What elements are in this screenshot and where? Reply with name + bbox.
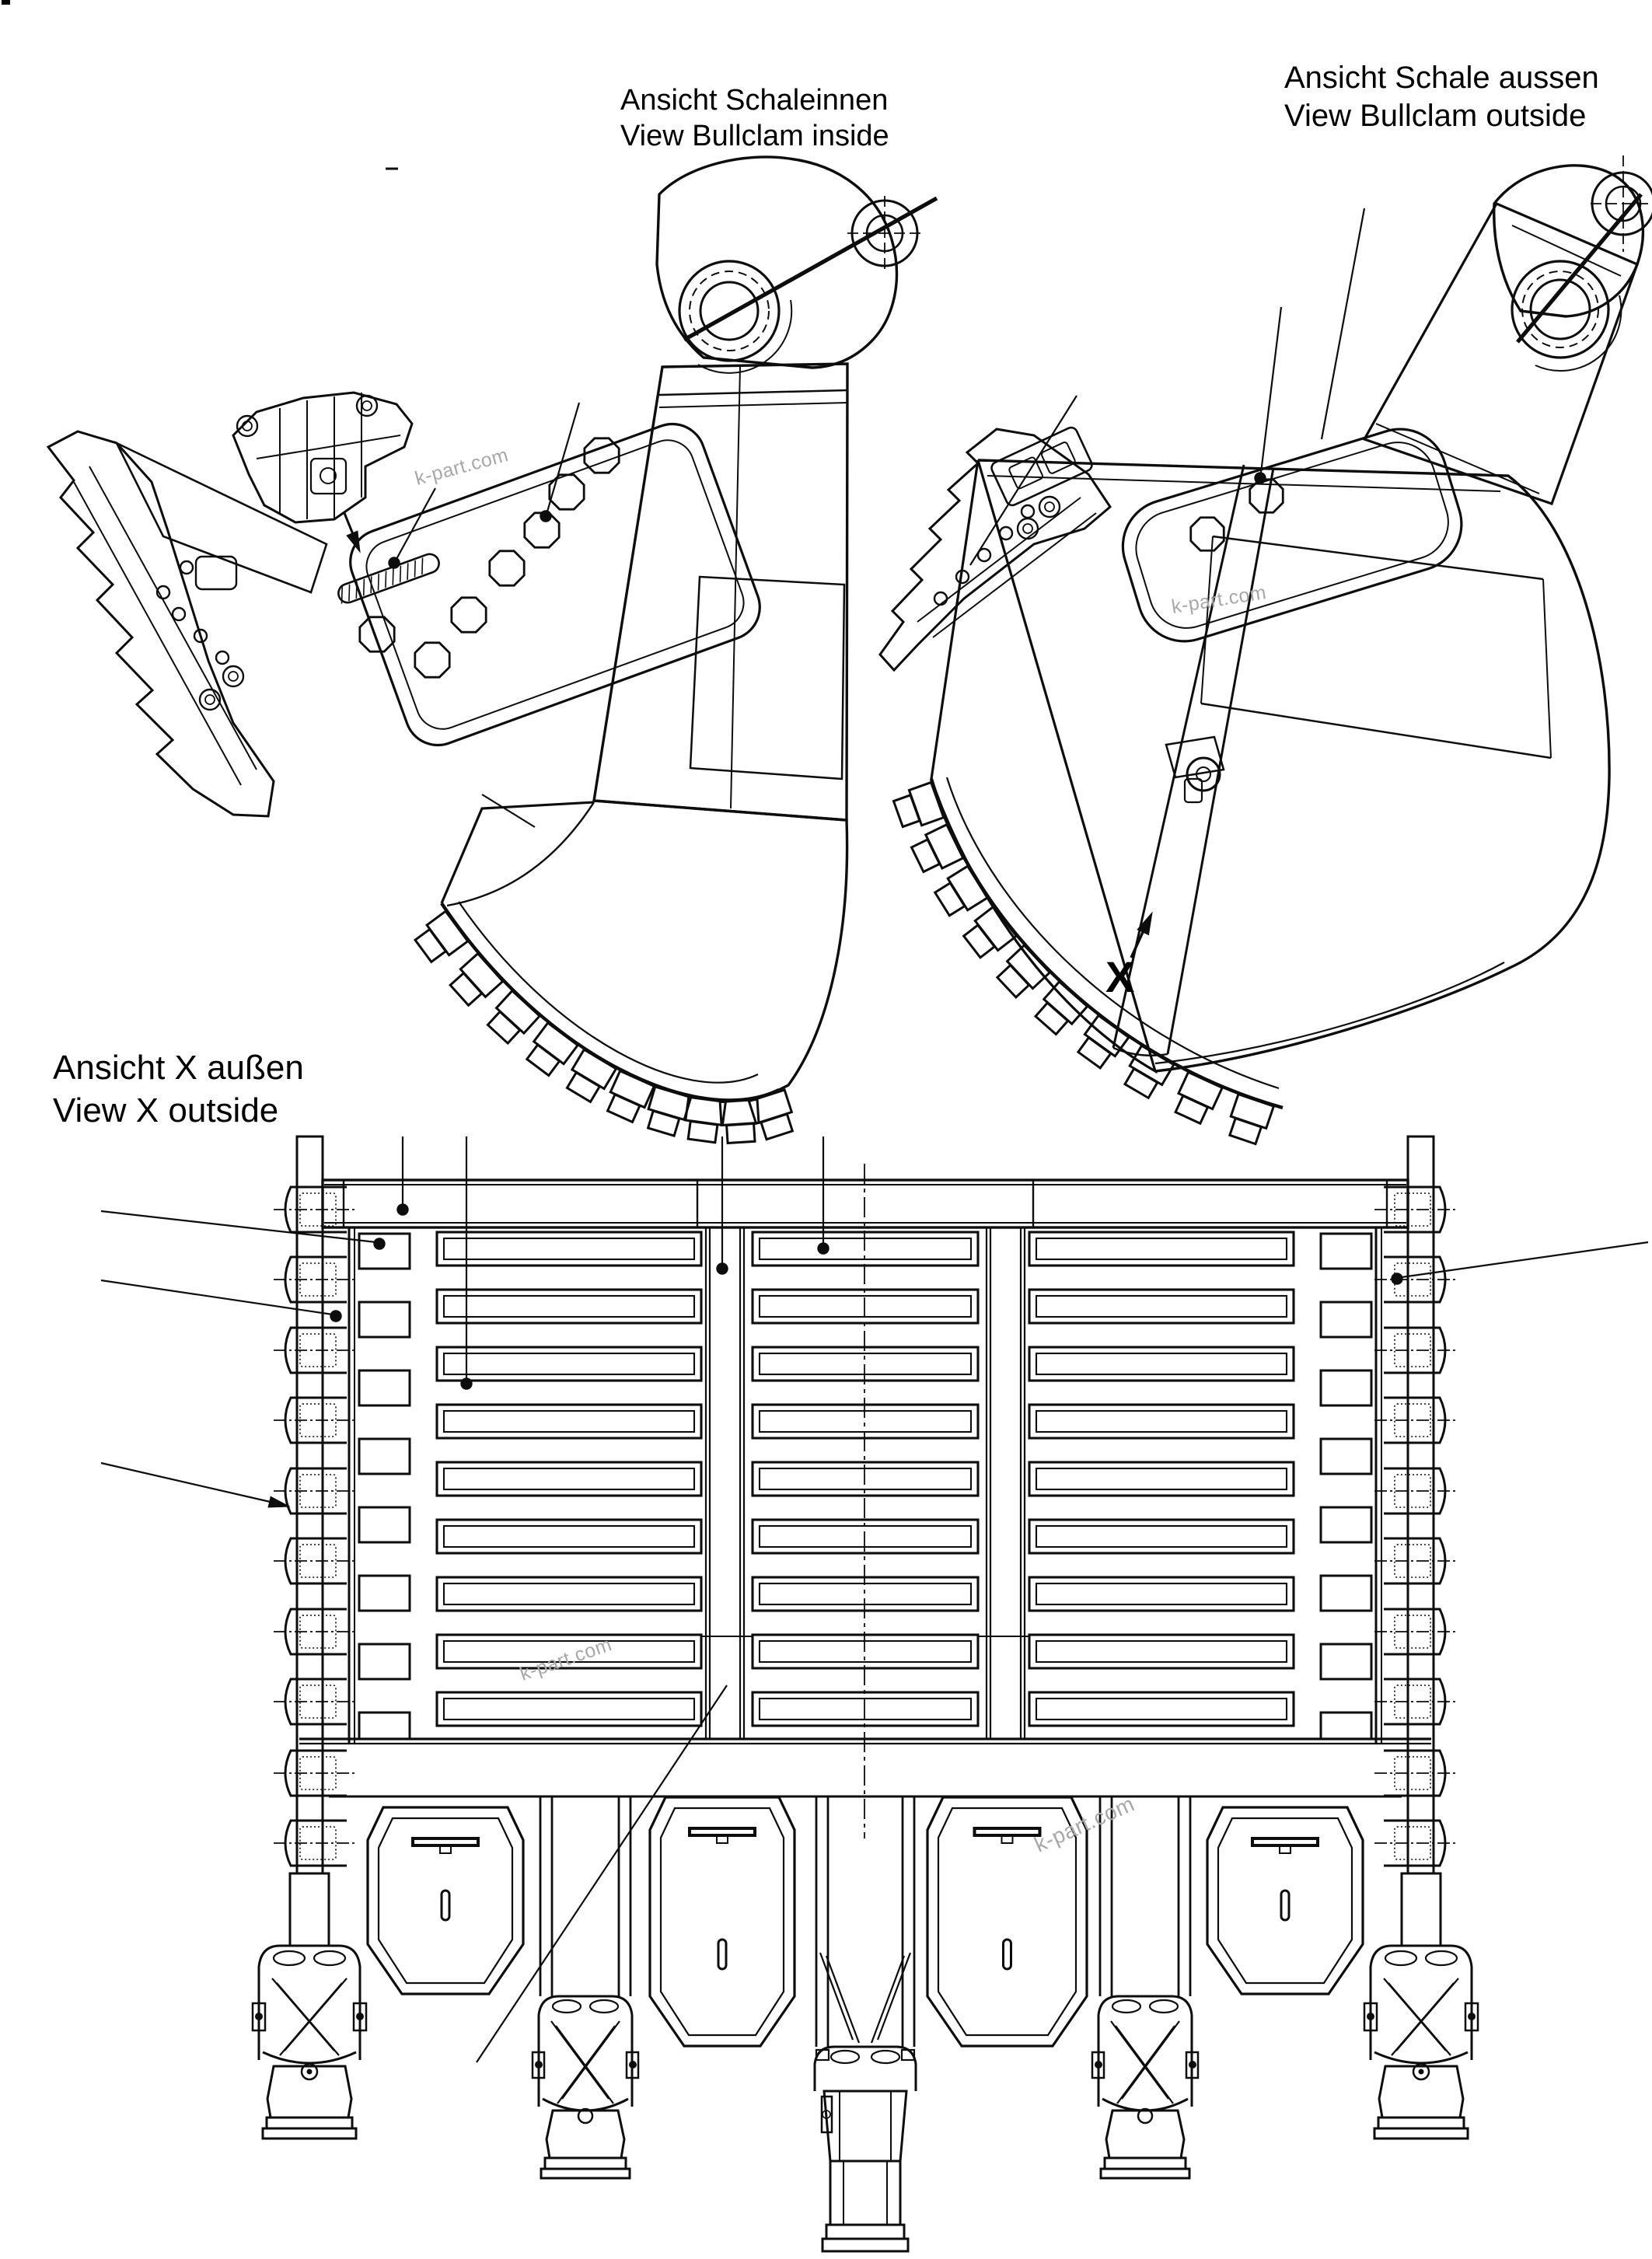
ear-pin [256, 2013, 263, 2020]
tooth-pin-dot [307, 2069, 312, 2074]
bucket-tooth-cap [761, 1114, 792, 1140]
shroud-retainer-bar [690, 1828, 755, 1835]
slot-group [336, 551, 442, 605]
tooth-base-plate [263, 2128, 356, 2139]
leader-dot [389, 557, 400, 568]
shroud-slot [718, 1940, 726, 1969]
wear-bar-inner [1036, 1468, 1287, 1489]
serrated-edge-assembly [880, 429, 1110, 670]
bucket-tooth-cap [527, 1045, 560, 1075]
shroud-slot [1281, 1891, 1289, 1920]
wear-bar-outer [753, 1462, 978, 1496]
detail-ellipse [1112, 2000, 1140, 2013]
lug-ring [237, 416, 257, 436]
wear-bar-inner [760, 1583, 971, 1604]
lug-ring-inner [362, 401, 372, 410]
detail-ellipse [1150, 2000, 1178, 2013]
mount-plate-outer [1111, 417, 1472, 653]
shell-facet [1201, 704, 1551, 758]
serrated-edge-assembly [48, 431, 274, 816]
bolt-ring [1018, 518, 1038, 539]
shell-facet [1543, 579, 1551, 758]
side-square-left [359, 1234, 410, 1269]
wear-bar-inner [760, 1526, 971, 1547]
side-square-right [1321, 1576, 1371, 1611]
adapter-strap [562, 2021, 620, 2099]
bucket-tooth-cap [688, 1121, 718, 1142]
bolt-head [934, 592, 947, 605]
wear-bar-inner [444, 1468, 694, 1489]
wear-bar-outer [753, 1635, 978, 1668]
detail-ellipse [274, 1951, 305, 1965]
leader-dot [461, 1378, 472, 1389]
tooth-shaft [290, 1873, 329, 1946]
caption-view-x: Ansicht X außen View X outside [53, 1046, 304, 1132]
tooth-base-plate [823, 2239, 908, 2251]
bucket-tooth [1008, 945, 1050, 989]
shroud-retainer-bar [413, 1838, 478, 1845]
wear-bar-inner [1036, 1641, 1287, 1662]
shell-outline [978, 460, 1609, 1071]
lip-shroud-inner [661, 1808, 784, 2035]
leader-dot [818, 1243, 829, 1254]
bolt-ring-inner [1045, 502, 1054, 512]
wear-bar-inner [760, 1468, 971, 1489]
side-square-left [359, 1370, 410, 1405]
adapter-strap [277, 1983, 339, 2055]
leader-dot [717, 1263, 728, 1274]
wear-bar-outer [753, 1577, 978, 1611]
slot-hatch [365, 576, 376, 593]
leader-line [482, 794, 535, 827]
slot-hatch [344, 585, 354, 602]
ear-pin [1469, 2013, 1476, 2020]
bucket-tooth-cap [727, 1123, 755, 1143]
adapter-rib [257, 435, 400, 459]
wear-block-right [1384, 1609, 1445, 1654]
tower-fold [659, 390, 847, 395]
tower-outline [594, 364, 847, 820]
slot-hatch [373, 574, 384, 591]
wear-bar-outer [1029, 1347, 1294, 1381]
caption-view-inside-en: View Bullclam inside [620, 118, 889, 154]
wear-bar-outer [437, 1405, 701, 1438]
side-square-right [1321, 1234, 1371, 1269]
arm-band-inner [1376, 424, 1539, 494]
detail-ellipse [1426, 1951, 1457, 1965]
wear-bar-outer [753, 1290, 978, 1323]
bucket-tooth-cap [450, 973, 482, 1005]
wear-bar-inner [1036, 1353, 1287, 1374]
wear-bar-outer [1029, 1520, 1294, 1553]
side-square-right [1321, 1370, 1371, 1405]
side-square-right [1321, 1507, 1371, 1542]
octagon-hole [452, 598, 486, 632]
view-x-marker-label: X [1105, 951, 1134, 1002]
leader-dot [397, 1204, 408, 1215]
bucket-tooth-cap [997, 965, 1029, 997]
tooth-body [824, 2091, 906, 2161]
side-square-right [1321, 1644, 1371, 1679]
adapter-strap [1116, 2026, 1173, 2104]
adapter-strap [871, 1956, 904, 2043]
bolt-ring-inner [205, 695, 215, 704]
leader-line [101, 1463, 274, 1503]
bucket-tooth-cap [1230, 1119, 1262, 1144]
wear-bar-outer [437, 1692, 701, 1726]
side-square-left [359, 1302, 410, 1337]
shroud-slot [442, 1891, 449, 1920]
shroud-retainer-bar [1252, 1838, 1318, 1845]
detail-ellipse [831, 2051, 859, 2063]
bolt-head [216, 651, 229, 664]
bolt-ring-inner [1023, 524, 1032, 533]
wear-block-right [1384, 1821, 1445, 1866]
wear-block-right [1384, 1187, 1445, 1232]
lip-shroud-outer [368, 1807, 523, 1994]
wear-slot [336, 551, 442, 605]
cutting-edge-arc [442, 903, 779, 1100]
tooth-body [1106, 2111, 1184, 2158]
wear-bar-outer [1029, 1635, 1294, 1668]
detail-ellipse [871, 2051, 899, 2063]
bolt-ring [1039, 497, 1060, 517]
wear-bar-inner [444, 1296, 694, 1317]
adapter-strap [551, 2021, 609, 2099]
adapter-strap [1111, 2021, 1168, 2099]
view-x-outside-drawing [101, 1136, 1648, 2251]
adapter-strap [1392, 1983, 1454, 2055]
adapter-strap [1122, 2021, 1179, 2099]
bucket-tooth-cap [1125, 1069, 1158, 1098]
ear-pin [536, 2062, 543, 2069]
tower-fold [659, 403, 847, 407]
adapter-bottom [1374, 2052, 1468, 2063]
ear-pin [1189, 2062, 1196, 2069]
wear-bar-inner [444, 1411, 694, 1432]
side-square-left [359, 1576, 410, 1611]
wear-bar-outer [437, 1347, 701, 1381]
bucket-tooth-cap [912, 840, 940, 872]
side-plate-outer [341, 415, 769, 755]
wear-block-right [1384, 1468, 1445, 1514]
shell-top-inner [987, 476, 1500, 491]
wear-bar-inner [1036, 1238, 1287, 1259]
wear-bar-outer [1029, 1692, 1294, 1726]
slot-hatch [380, 571, 391, 588]
adapter-strap [820, 1953, 853, 2040]
caption-view-x-en: View X outside [53, 1089, 304, 1132]
bucket-tooth-cap [935, 883, 965, 916]
tooth-base-plate [1101, 2169, 1189, 2178]
ear-pin [630, 2062, 637, 2069]
shell-bottom-inner [1155, 962, 1504, 1063]
bucket-tooth-cap [1078, 1038, 1111, 1068]
view-bullclam-outside-drawing [880, 155, 1652, 1144]
wear-bar-inner [1036, 1699, 1287, 1720]
side-square-right [1321, 1302, 1371, 1337]
adapter-strap [557, 2026, 615, 2104]
detail-ellipse [553, 2000, 581, 2013]
wear-bar-outer [753, 1692, 978, 1726]
wear-block-right [1384, 1679, 1445, 1724]
tooth-shaft [830, 2161, 900, 2225]
wear-bar-inner [444, 1699, 694, 1720]
wear-bar-inner [1036, 1583, 1287, 1604]
tooth-base-plate [541, 2169, 630, 2178]
mount-plate-group [1111, 417, 1472, 653]
tooth-base [267, 2118, 352, 2128]
slot-hatch [387, 568, 398, 585]
wear-bar-inner [1036, 1526, 1287, 1547]
lug-ring [357, 396, 377, 416]
hinge-bore-outer [679, 261, 779, 361]
side-square-right [1321, 1713, 1371, 1739]
caption-view-inside-de: Ansicht Schaleinnen [620, 82, 889, 118]
wear-block-right [1384, 1328, 1445, 1373]
wear-bar-inner [444, 1353, 694, 1374]
caption-view-outside-en: View Bullclam outside [1284, 97, 1599, 135]
edge-adapter-window [1041, 442, 1076, 474]
wear-bar-outer [1029, 1232, 1294, 1266]
bolt-ring [200, 690, 220, 710]
wear-bar-inner [760, 1641, 971, 1662]
wear-bar-inner [444, 1583, 694, 1604]
leader-dot [1255, 473, 1266, 484]
wear-bar-outer [437, 1577, 701, 1611]
leader-line [477, 1685, 727, 2062]
wear-bar-inner [1036, 1411, 1287, 1432]
bolt-head [180, 561, 193, 574]
shell-outline [594, 801, 847, 1090]
tooth-base [1378, 2118, 1464, 2128]
wear-bar-outer [437, 1232, 701, 1266]
tooth-base [826, 2225, 904, 2239]
shell-inner-arc [459, 902, 758, 1083]
wear-bar-outer [753, 1232, 978, 1266]
bucket-tooth-cap [648, 1111, 679, 1136]
bucket-tooth-cap [415, 930, 445, 962]
tower-fold [731, 367, 740, 808]
page-corner-mark [2, 0, 10, 5]
wear-bar-outer [437, 1290, 701, 1323]
wear-bar-outer [1029, 1405, 1294, 1438]
hinge-bore-pitch [1522, 271, 1598, 347]
wear-bar-outer [753, 1347, 978, 1381]
adapter-strap [878, 1953, 910, 2040]
bucket-tooth-cap [964, 925, 995, 958]
wear-bar-inner [760, 1411, 971, 1432]
wear-bar-inner [444, 1526, 694, 1547]
leader-line [1322, 208, 1364, 439]
ear-pin [357, 2013, 364, 2020]
side-square-left [359, 1507, 410, 1542]
wear-bar-outer [437, 1520, 701, 1553]
view-bullclam-inside-drawing [48, 157, 937, 1143]
bucket-tooth-cap [567, 1073, 599, 1102]
bucket-tooth-cap [608, 1095, 640, 1122]
lip-shroud-outer [1207, 1807, 1363, 1994]
adapter-strap [1388, 1983, 1451, 2055]
lip-shroud-inner [1218, 1818, 1352, 1983]
leader-dot [330, 1311, 341, 1322]
shroud-slot [1004, 1940, 1011, 1969]
octagon-hole [1191, 518, 1224, 550]
wear-bar-outer [1029, 1462, 1294, 1496]
tooth-base [1105, 2158, 1186, 2169]
bolt-head [1022, 505, 1034, 518]
adapter-strap [826, 1956, 859, 2043]
detail-ellipse [1385, 1951, 1416, 1965]
wear-bar-outer [1029, 1577, 1294, 1611]
shell-facet [1213, 536, 1543, 579]
leader-line [1402, 1242, 1648, 1277]
adapter-strap [280, 1983, 342, 2055]
caption-view-x-de: Ansicht X außen [53, 1046, 304, 1089]
slot-hatch [417, 558, 428, 575]
tower-facet [690, 577, 844, 779]
detail-ellipse [590, 2000, 618, 2013]
adapter-strap [1117, 2026, 1175, 2104]
caption-view-outside-de: Ansicht Schale aussen [1284, 59, 1599, 97]
bolt-head [1000, 527, 1012, 539]
wear-bar-outer [437, 1462, 701, 1496]
adapter-flange [815, 2047, 916, 2066]
slot-hatch [402, 563, 413, 580]
wear-bar-inner [760, 1238, 971, 1259]
octagon-hole [490, 551, 524, 585]
adapter-window [311, 459, 346, 494]
caption-view-outside: Ansicht Schale aussen View Bullclam outs… [1284, 59, 1599, 135]
arm-head-outline [1494, 166, 1643, 316]
hinge-bore-inner [700, 282, 758, 340]
leader-dot [540, 511, 551, 522]
bucket-tooth-cap [1175, 1096, 1207, 1124]
side-square-left [359, 1439, 410, 1474]
top-edge-band [323, 1180, 1408, 1227]
bucket-tooth-cap [487, 1011, 519, 1043]
leader-line [396, 488, 435, 559]
ear-pin [1367, 2013, 1374, 2020]
side-post-right [1408, 1136, 1434, 1873]
adapter-strap [556, 2026, 613, 2104]
serrated-edge-line [74, 482, 241, 785]
wear-block-right [1384, 1398, 1445, 1443]
slot-hatch [410, 560, 421, 578]
leader-dot [374, 1238, 385, 1249]
side-plate-group [341, 415, 769, 755]
tooth-shaft [1402, 1873, 1441, 1946]
bolt-ring [223, 666, 243, 686]
leader-dot [1392, 1273, 1402, 1284]
ear-pin [1095, 2062, 1102, 2069]
leader-line [1261, 307, 1281, 473]
wear-bar-inner [760, 1699, 971, 1720]
octagon-hole [550, 475, 584, 509]
tooth-base [545, 2158, 626, 2169]
bolt-head [173, 608, 185, 620]
adapter-bottom [263, 2052, 356, 2063]
detail-ellipse [314, 1951, 345, 1965]
side-square-left [359, 1644, 410, 1679]
shell-facet [1201, 536, 1213, 704]
lip-shroud-inner [379, 1818, 512, 1983]
wear-bar-outer [753, 1405, 978, 1438]
wear-block-right [1384, 1538, 1445, 1583]
edge-mount-bracket [117, 443, 327, 592]
wear-bar-outer [753, 1520, 978, 1553]
wear-bar-inner [444, 1238, 694, 1259]
bucket-tooth-cap [1036, 1003, 1067, 1034]
side-post-left [297, 1136, 323, 1873]
wear-bar-inner [760, 1296, 971, 1317]
wear-bar-inner [760, 1353, 971, 1374]
bucket-tooth-cap [893, 795, 919, 827]
tooth-body [547, 2111, 624, 2158]
tooth-pin-dot [1419, 2069, 1423, 2074]
octagon-hole [415, 643, 449, 677]
tooth-base-plate [1374, 2128, 1468, 2139]
side-square-left [359, 1713, 410, 1739]
wear-block-right [1384, 1751, 1445, 1796]
bolt-ring-inner [229, 672, 238, 681]
wear-bar-inner [1036, 1296, 1287, 1317]
pin-axis-line [684, 198, 937, 340]
caption-view-inside: Ansicht Schaleinnen View Bullclam inside [620, 82, 889, 155]
side-square-right [1321, 1439, 1371, 1474]
wear-bar-outer [1029, 1290, 1294, 1323]
octagon-hole [585, 438, 619, 473]
